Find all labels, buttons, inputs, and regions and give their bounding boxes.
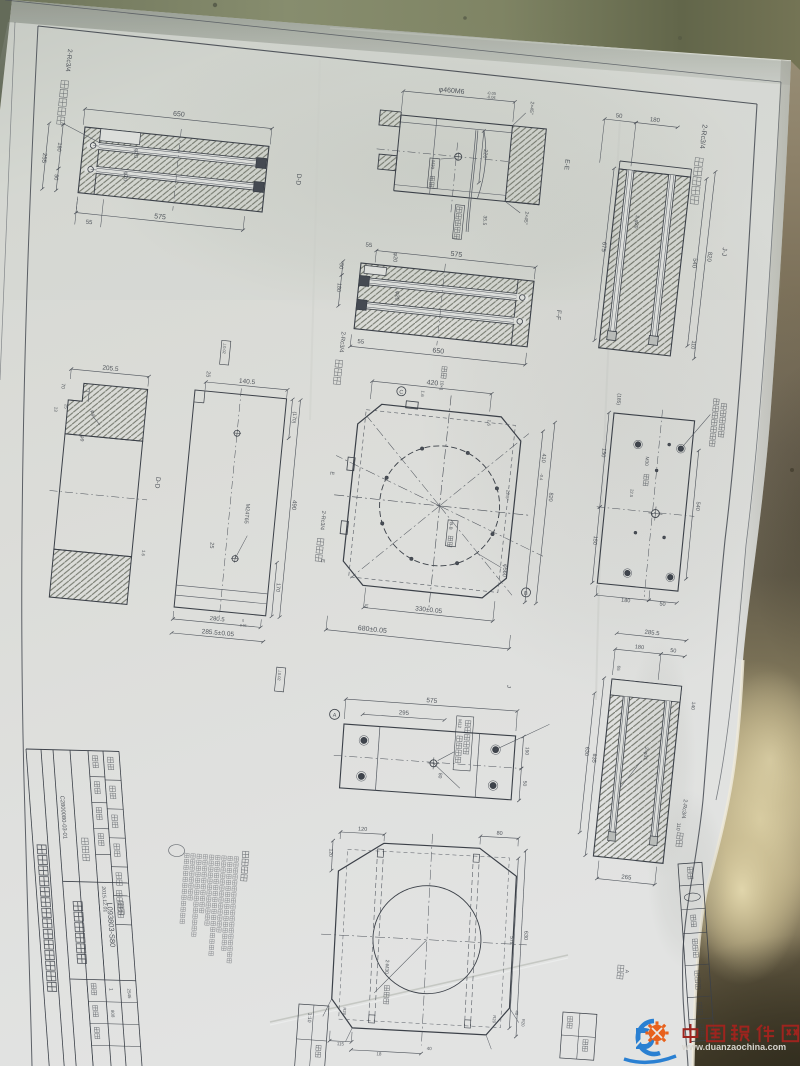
svg-text:25: 25 bbox=[204, 371, 211, 378]
svg-text:φ20: φ20 bbox=[132, 148, 139, 158]
svg-text:808: 808 bbox=[110, 1010, 116, 1018]
svg-text:55: 55 bbox=[357, 339, 365, 346]
svg-text:15: 15 bbox=[63, 404, 69, 410]
svg-text:150: 150 bbox=[600, 448, 607, 458]
svg-text:55: 55 bbox=[365, 242, 373, 249]
svg-text:540: 540 bbox=[690, 258, 697, 269]
svg-text:110: 110 bbox=[689, 340, 696, 349]
svg-text:B-B: B-B bbox=[448, 522, 454, 530]
svg-text:835: 835 bbox=[590, 753, 597, 763]
svg-text:575: 575 bbox=[426, 697, 438, 705]
svg-text:-0.04: -0.04 bbox=[486, 94, 496, 100]
svg-text:R20: R20 bbox=[492, 1015, 497, 1024]
svg-text:180: 180 bbox=[635, 644, 645, 651]
svg-text:35.5: 35.5 bbox=[481, 215, 488, 225]
svg-text:140: 140 bbox=[689, 701, 696, 710]
svg-text:III: III bbox=[363, 603, 369, 608]
svg-text:D-D: D-D bbox=[294, 173, 302, 186]
svg-text:φ20: φ20 bbox=[122, 171, 129, 181]
svg-text:M30: M30 bbox=[430, 160, 436, 170]
svg-text:630: 630 bbox=[583, 746, 590, 756]
svg-text:J-J: J-J bbox=[720, 247, 728, 256]
svg-text:1.6: 1.6 bbox=[420, 390, 426, 397]
svg-text:70: 70 bbox=[59, 383, 66, 389]
svg-text:φ9: φ9 bbox=[78, 435, 85, 442]
svg-text:50: 50 bbox=[670, 648, 677, 655]
svg-text:22.5: 22.5 bbox=[629, 489, 635, 498]
svg-text:φ20: φ20 bbox=[393, 291, 400, 301]
svg-text:55: 55 bbox=[85, 220, 93, 227]
svg-text:2×45°: 2×45° bbox=[528, 101, 535, 115]
svg-text:1.6: 1.6 bbox=[141, 550, 147, 557]
svg-text:80: 80 bbox=[436, 773, 442, 779]
svg-text:1:10: 1:10 bbox=[306, 1013, 313, 1023]
svg-text:120: 120 bbox=[327, 848, 333, 857]
svg-text:180: 180 bbox=[621, 598, 631, 605]
svg-text:575: 575 bbox=[450, 251, 462, 259]
svg-text:265: 265 bbox=[621, 875, 632, 882]
svg-text:295: 295 bbox=[399, 710, 410, 717]
svg-text:80: 80 bbox=[496, 831, 502, 837]
svg-text:2-M30: 2-M30 bbox=[383, 959, 390, 974]
svg-text:R20: R20 bbox=[521, 1019, 526, 1028]
svg-text:25: 25 bbox=[208, 542, 215, 549]
svg-text:190: 190 bbox=[523, 747, 530, 756]
svg-text:820: 820 bbox=[547, 492, 554, 502]
svg-text:-0.4: -0.4 bbox=[539, 473, 545, 481]
svg-text:675: 675 bbox=[600, 241, 607, 252]
svg-text:13: 13 bbox=[53, 407, 59, 413]
svg-text:170: 170 bbox=[274, 583, 281, 593]
svg-text:φ9: φ9 bbox=[89, 410, 96, 417]
svg-text:410: 410 bbox=[540, 453, 547, 463]
svg-text:630: 630 bbox=[522, 931, 528, 940]
svg-text:650: 650 bbox=[173, 111, 185, 119]
svg-text:1.6: 1.6 bbox=[486, 419, 492, 426]
svg-text:255: 255 bbox=[40, 153, 47, 164]
svg-text:575: 575 bbox=[154, 213, 166, 221]
svg-text:50: 50 bbox=[521, 781, 527, 787]
svg-text:18: 18 bbox=[376, 1051, 382, 1056]
svg-text:M30: M30 bbox=[643, 456, 650, 466]
svg-text:F-F: F-F bbox=[554, 310, 562, 321]
svg-text:180: 180 bbox=[55, 142, 62, 152]
svg-text:R20: R20 bbox=[342, 1007, 347, 1016]
svg-text:150: 150 bbox=[591, 535, 598, 545]
svg-text:C: C bbox=[399, 390, 404, 396]
svg-text:M12: M12 bbox=[457, 719, 463, 729]
svg-text:115: 115 bbox=[337, 1041, 345, 1046]
svg-text:50: 50 bbox=[659, 601, 666, 608]
svg-text:575: 575 bbox=[508, 936, 514, 945]
svg-text:D-D: D-D bbox=[153, 477, 161, 489]
svg-text:120: 120 bbox=[358, 826, 367, 832]
svg-text:180: 180 bbox=[649, 117, 660, 124]
svg-text:490: 490 bbox=[290, 500, 297, 511]
svg-text:(170): (170) bbox=[290, 411, 297, 424]
svg-text:50: 50 bbox=[52, 174, 59, 181]
svg-text:820: 820 bbox=[705, 251, 712, 262]
svg-text:(185): (185) bbox=[615, 393, 622, 406]
svg-text:www.duanzaochina.com: www.duanzaochina.com bbox=[681, 1042, 786, 1052]
svg-text:420: 420 bbox=[426, 379, 438, 387]
svg-text:110: 110 bbox=[675, 822, 682, 831]
svg-text:1: 1 bbox=[107, 988, 113, 991]
svg-text:φ20: φ20 bbox=[391, 252, 398, 262]
svg-text:-0.05: -0.05 bbox=[238, 623, 246, 628]
svg-text:220: 220 bbox=[481, 149, 488, 159]
svg-text:E-E: E-E bbox=[562, 159, 570, 171]
svg-text:2545: 2545 bbox=[126, 988, 132, 999]
svg-text:650: 650 bbox=[432, 347, 444, 355]
svg-text:40: 40 bbox=[427, 1046, 433, 1051]
svg-text:540: 540 bbox=[694, 501, 701, 511]
svg-text:2×45°: 2×45° bbox=[522, 211, 529, 225]
svg-text:180: 180 bbox=[335, 282, 342, 292]
svg-text:50: 50 bbox=[337, 263, 344, 270]
